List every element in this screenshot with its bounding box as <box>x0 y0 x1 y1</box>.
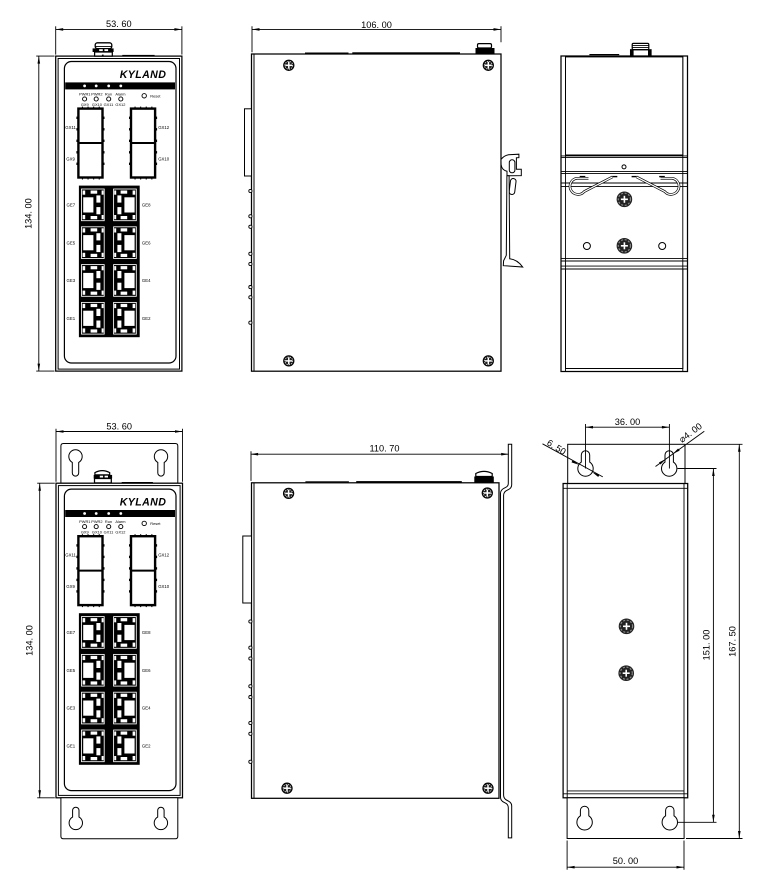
svg-text:110. 70: 110. 70 <box>370 444 400 454</box>
svg-text:GE1: GE1 <box>66 744 75 749</box>
svg-text:GE4: GE4 <box>142 706 151 711</box>
svg-text:Run: Run <box>105 519 112 524</box>
svg-text:134. 00: 134. 00 <box>25 625 35 656</box>
svg-text:GX12: GX12 <box>115 530 125 535</box>
svg-text:GX10: GX10 <box>92 102 103 107</box>
svg-text:KYLAND: KYLAND <box>120 497 167 509</box>
svg-text:GX9: GX9 <box>81 102 89 107</box>
svg-text:KYLAND: KYLAND <box>120 69 167 81</box>
svg-text:GX12: GX12 <box>158 553 170 558</box>
svg-text:GE2: GE2 <box>142 316 151 321</box>
svg-text:GX10: GX10 <box>158 157 170 162</box>
svg-text:GX10: GX10 <box>92 530 103 535</box>
svg-text:GE8: GE8 <box>142 203 151 208</box>
svg-text:GX12: GX12 <box>115 102 125 107</box>
svg-text:GE3: GE3 <box>66 706 75 711</box>
svg-text:GX11: GX11 <box>104 102 114 107</box>
svg-text:GE6: GE6 <box>142 240 151 245</box>
svg-text:Reset: Reset <box>150 521 161 526</box>
svg-text:GE5: GE5 <box>66 240 75 245</box>
svg-text:134. 00: 134. 00 <box>24 198 34 229</box>
svg-text:GE7: GE7 <box>66 630 75 635</box>
svg-text:53. 60: 53. 60 <box>106 421 132 431</box>
svg-text:GE7: GE7 <box>66 203 75 208</box>
svg-text:36. 00: 36. 00 <box>615 417 641 427</box>
svg-text:PWR1: PWR1 <box>79 91 90 96</box>
svg-text:GE2: GE2 <box>142 744 151 749</box>
svg-text:Alarm: Alarm <box>115 91 125 96</box>
svg-text:PWR2: PWR2 <box>91 519 102 524</box>
svg-text:GX11: GX11 <box>65 553 76 558</box>
svg-text:GE3: GE3 <box>66 278 75 283</box>
svg-text:53. 60: 53. 60 <box>106 19 132 29</box>
svg-text:GX9: GX9 <box>66 157 75 162</box>
svg-text:GX11: GX11 <box>104 530 114 535</box>
svg-text:GX10: GX10 <box>158 584 170 589</box>
svg-text:GX12: GX12 <box>158 125 170 130</box>
svg-text:GX11: GX11 <box>65 125 76 130</box>
svg-text:PWR2: PWR2 <box>91 91 102 96</box>
svg-text:GE5: GE5 <box>66 668 75 673</box>
svg-text:GX9: GX9 <box>81 530 89 535</box>
svg-text:GE6: GE6 <box>142 668 151 673</box>
svg-text:Run: Run <box>105 91 112 96</box>
svg-text:50. 00: 50. 00 <box>613 856 639 866</box>
svg-text:Reset: Reset <box>150 93 161 98</box>
svg-text:Alarm: Alarm <box>115 519 125 524</box>
svg-text:151. 00: 151. 00 <box>702 630 712 661</box>
svg-text:106. 00: 106. 00 <box>361 20 392 30</box>
svg-text:GE1: GE1 <box>66 316 75 321</box>
svg-text:167. 50: 167. 50 <box>728 626 738 657</box>
svg-text:PWR1: PWR1 <box>79 519 90 524</box>
svg-text:GE4: GE4 <box>142 278 151 283</box>
svg-text:GE8: GE8 <box>142 630 151 635</box>
svg-text:GX9: GX9 <box>66 584 75 589</box>
